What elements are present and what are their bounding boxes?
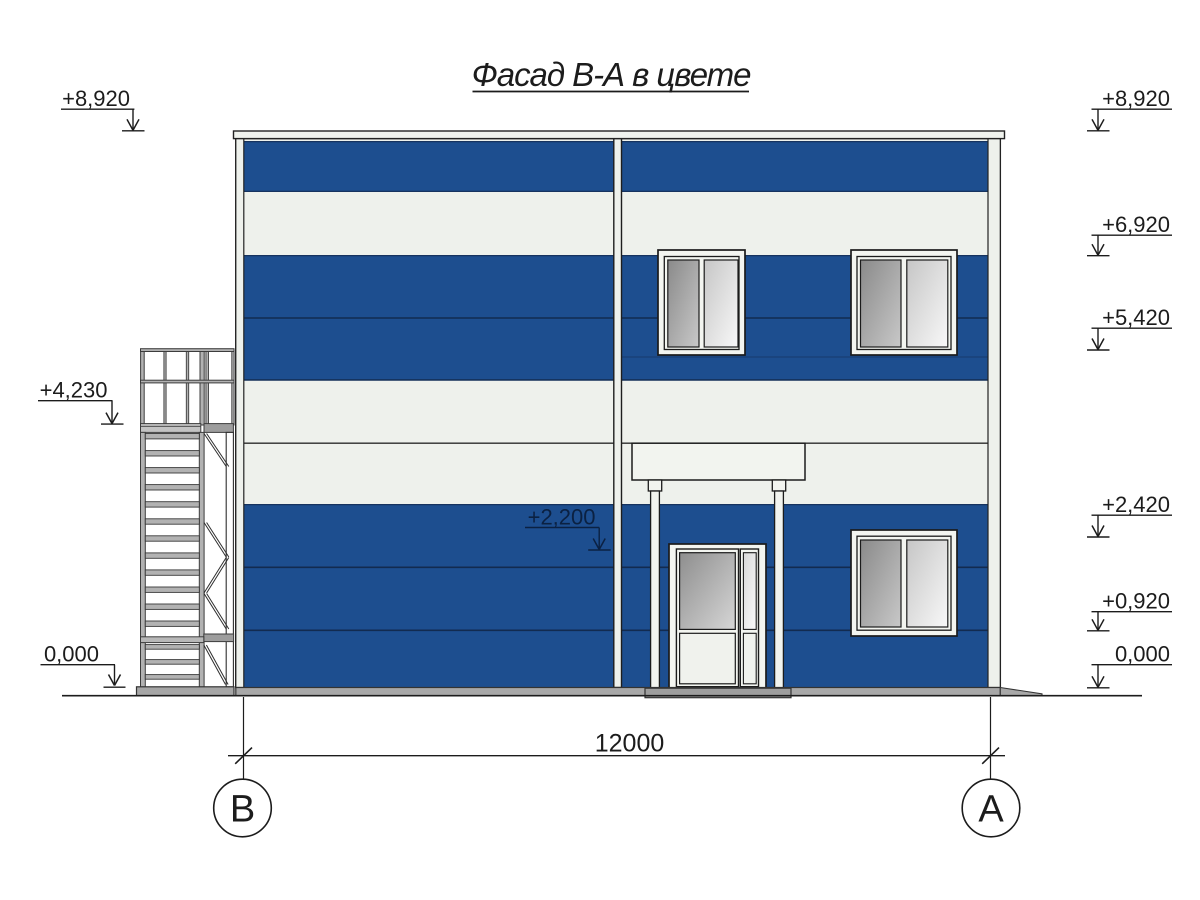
svg-text:0,000: 0,000	[1115, 642, 1170, 667]
svg-text:В: В	[230, 789, 255, 831]
svg-text:+8,920: +8,920	[1102, 86, 1170, 111]
svg-text:Фасад В-А в цвете: Фасад В-А в цвете	[472, 56, 751, 93]
svg-text:+2,420: +2,420	[1102, 492, 1170, 517]
svg-text:+6,920: +6,920	[1102, 212, 1170, 237]
svg-text:+2,200: +2,200	[528, 504, 596, 529]
svg-text:+8,920: +8,920	[62, 86, 130, 111]
svg-text:12000: 12000	[595, 730, 665, 758]
svg-text:0,000: 0,000	[44, 642, 99, 667]
svg-text:+0,920: +0,920	[1102, 589, 1170, 614]
svg-text:А: А	[978, 789, 1004, 831]
svg-text:+4,230: +4,230	[40, 378, 108, 403]
svg-text:+5,420: +5,420	[1102, 305, 1170, 330]
